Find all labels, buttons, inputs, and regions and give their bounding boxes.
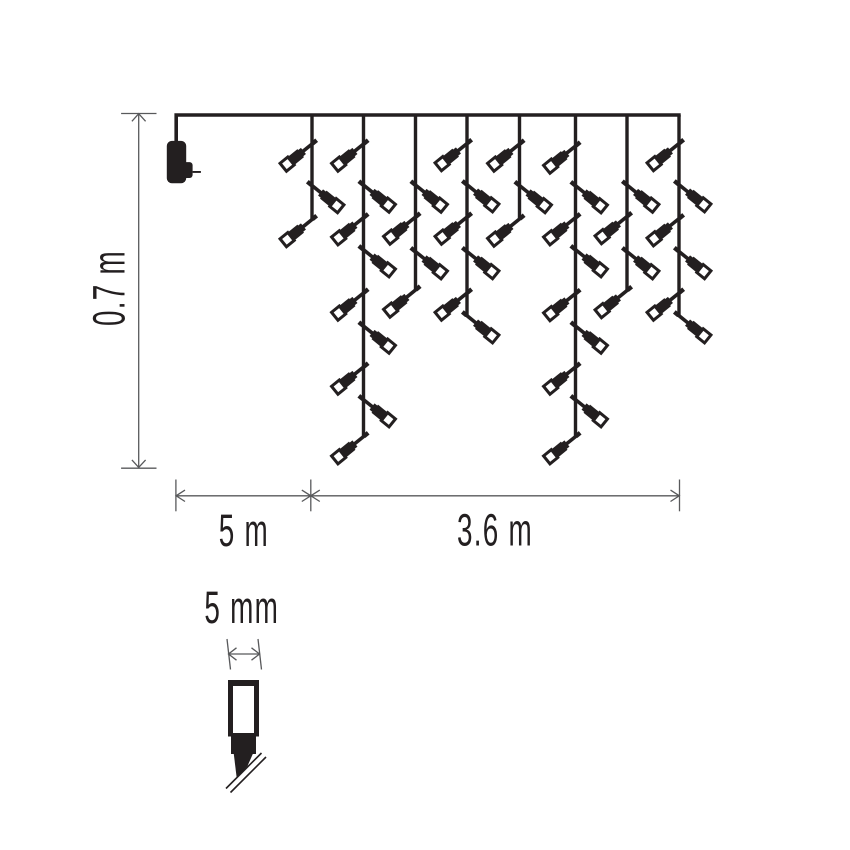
svg-text:3.6 m: 3.6 m <box>457 505 533 555</box>
svg-text:0.7 m: 0.7 m <box>84 250 134 326</box>
svg-text:5 m: 5 m <box>219 505 269 555</box>
svg-text:5 mm: 5 mm <box>204 582 279 632</box>
